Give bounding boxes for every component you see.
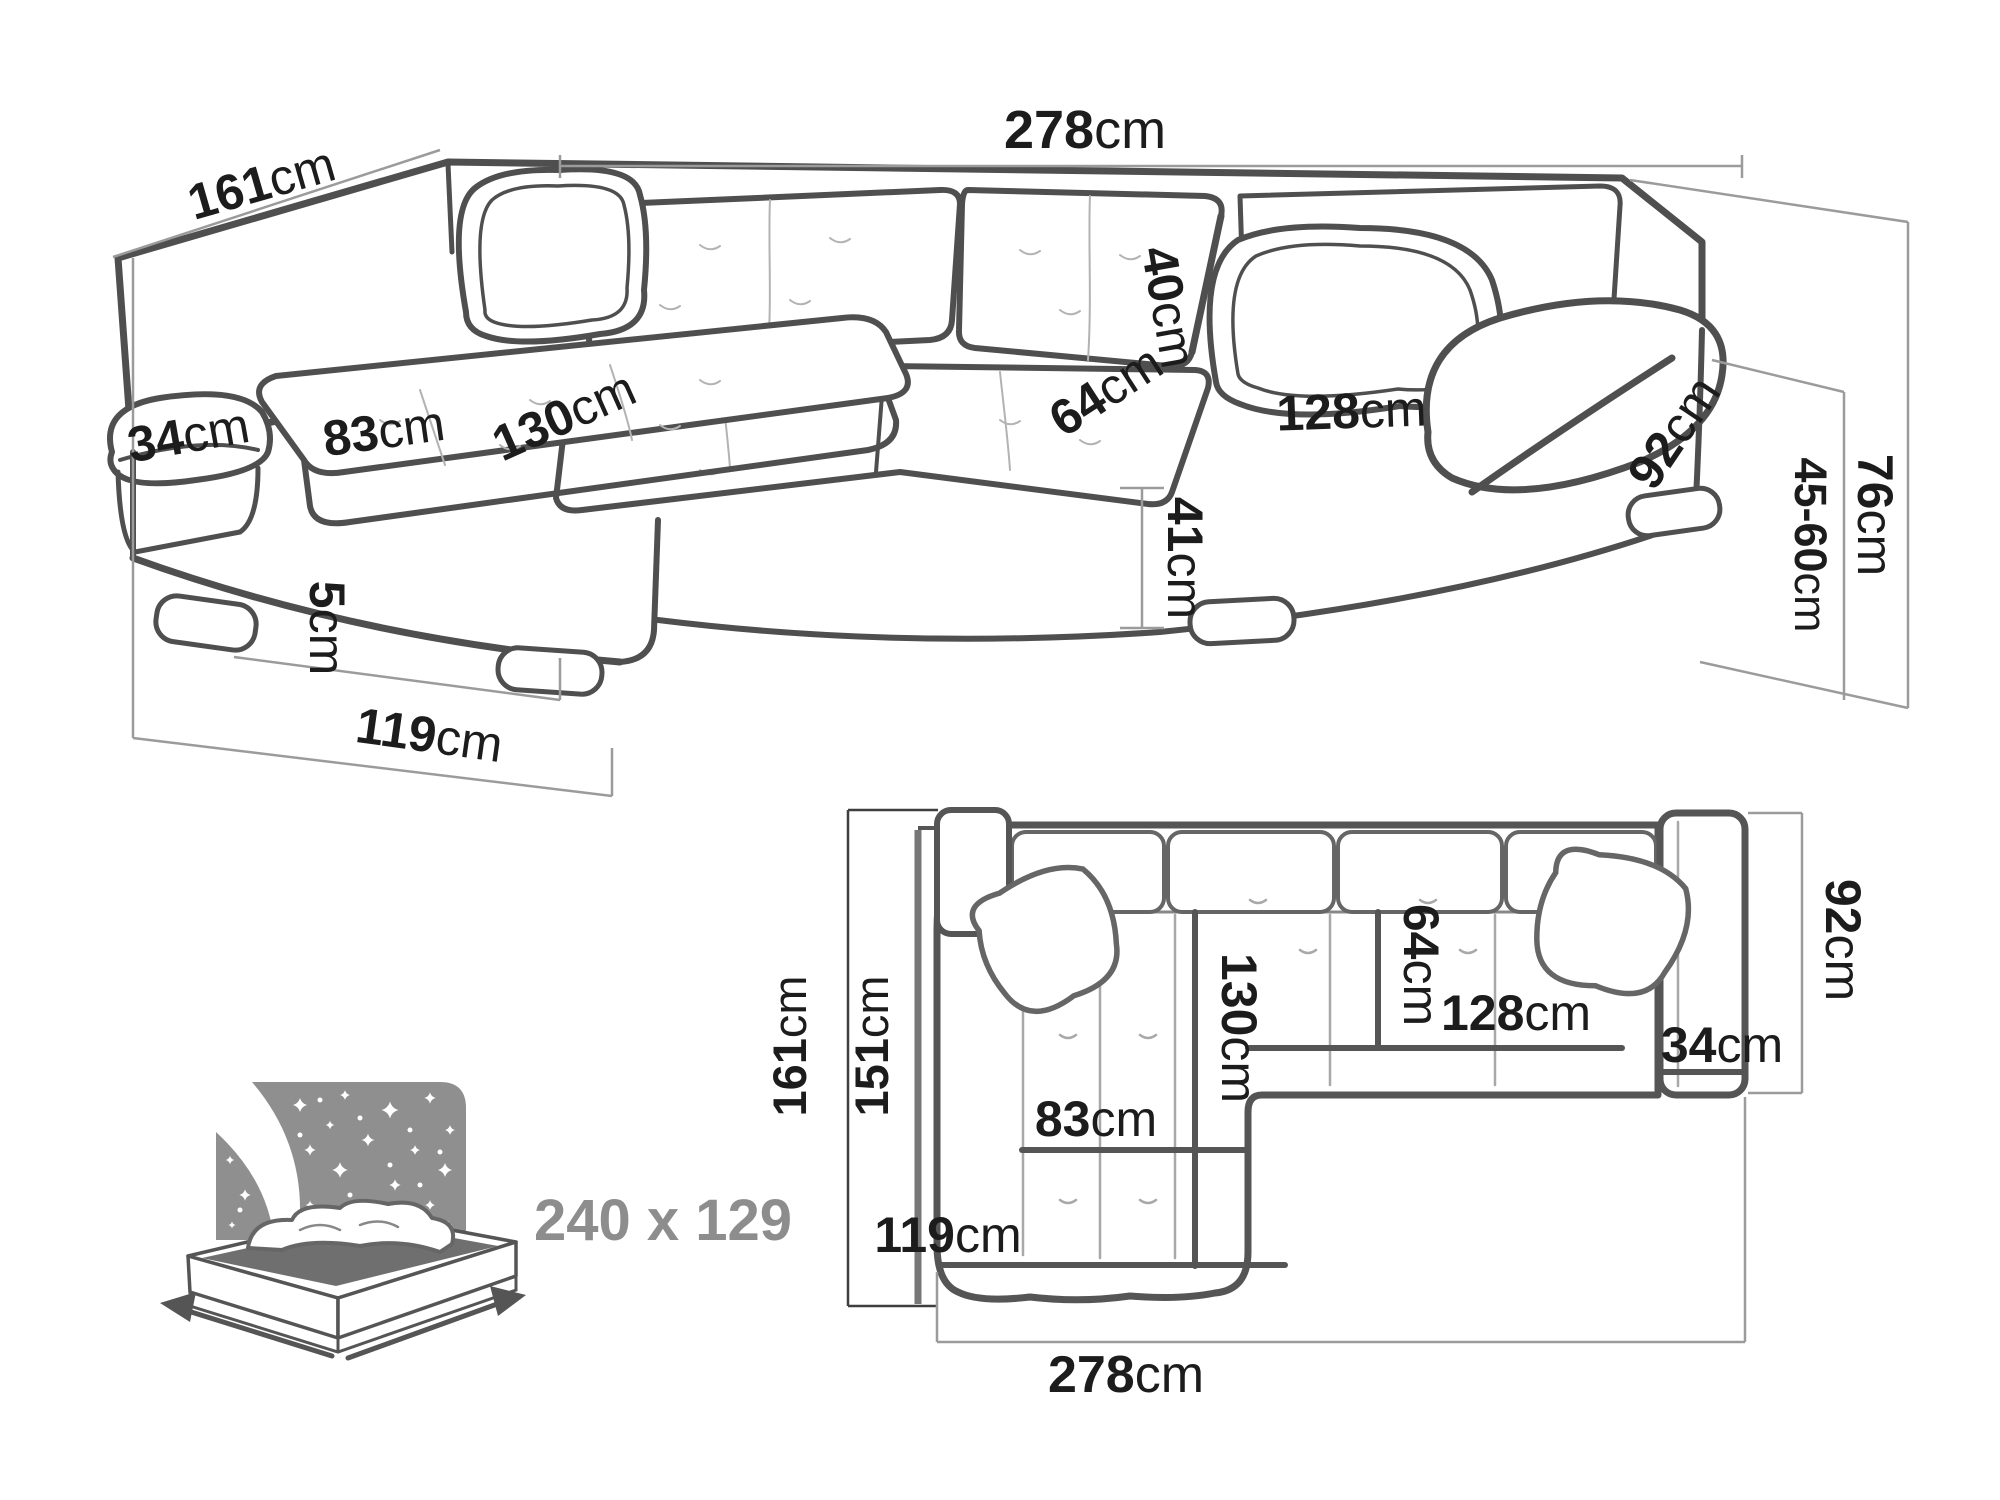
sofa-bed-function-icon: 240 x 129 [160, 1082, 792, 1358]
dim-3d-128cm: 128cm [1275, 380, 1427, 441]
dim-3d-41cm: 41cm [1157, 497, 1213, 619]
dim-3d-76cm: 76cm [1847, 454, 1903, 576]
sofa-dimensions-diagram: 161cm 278cm 40cm 64cm 128cm 34cm 83cm 13… [0, 0, 2000, 1500]
dim-3d-278cm: 278cm [1004, 100, 1166, 160]
dim-plan-83cm: 83cm [1035, 1091, 1157, 1147]
dim-3d-45-60cm: 45-60cm [1785, 457, 1836, 632]
dim-plan-92cm: 92cm [1815, 879, 1871, 1001]
dim-plan-119cm: 119cm [874, 1207, 1021, 1263]
dim-3d-119cm: 119cm [353, 697, 507, 773]
sleeping-area-label: 240 x 129 [534, 1188, 792, 1253]
perspective-view: 161cm 278cm 40cm 64cm 128cm 34cm 83cm 13… [110, 100, 1908, 796]
dim-plan-34cm: 34cm [1661, 1017, 1783, 1073]
dim-plan-128cm: 128cm [1441, 985, 1591, 1041]
plan-view: 161cm 151cm 130cm 64cm 128cm 34cm 92cm 8… [763, 810, 1871, 1404]
dim-plan-278cm: 278cm [1048, 1346, 1204, 1404]
dim-plan-161cm: 161cm [763, 975, 816, 1116]
pillow-left [459, 169, 646, 341]
dim-plan-151cm: 151cm [845, 975, 898, 1116]
bed-duvet-pillows [248, 1201, 453, 1252]
dim-plan-130cm: 130cm [1211, 953, 1267, 1103]
dim-3d-5cm: 5cm [299, 581, 355, 675]
